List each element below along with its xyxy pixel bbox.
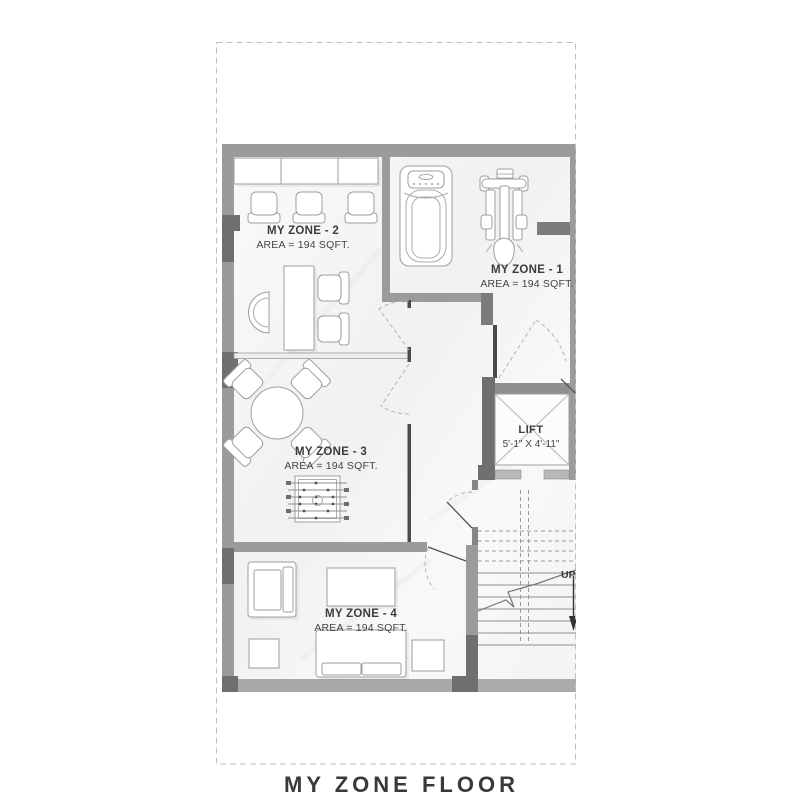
- desk: [284, 266, 314, 350]
- side-table-icon: [249, 639, 279, 668]
- zone-2-name: MY ZONE - 2: [267, 225, 339, 237]
- counter-desk: [234, 158, 378, 184]
- chair-icon: [345, 192, 377, 223]
- zone-3-name: MY ZONE - 3: [295, 446, 367, 458]
- chair-icon: [293, 192, 325, 223]
- wall-zone1-zone2-divider: [382, 157, 390, 293]
- wall-zone3-zone4: [234, 542, 412, 552]
- lift-label: LIFT: [518, 424, 543, 436]
- wall-zone2-zone3-divider: [234, 353, 408, 359]
- page-title: MY ZONE FLOOR: [0, 772, 803, 798]
- lift-door-jamb: [544, 470, 569, 479]
- wall-bottom-right: [478, 679, 578, 692]
- wall-stairs-left: [472, 480, 478, 490]
- lift-door-jamb: [495, 470, 521, 479]
- lift-shaft: LIFT 5'-1" X 4'-11": [478, 377, 578, 480]
- wall-door-stub: [412, 542, 427, 552]
- wall-bottom: [238, 679, 452, 692]
- wall-left-column: [222, 215, 234, 262]
- zone-3-area: AREA = 194 SQFT.: [284, 460, 377, 472]
- floor-plan-drawing: LIFT 5'-1" X 4'-11" UP: [0, 0, 803, 811]
- lift-wall-left: [482, 377, 495, 480]
- zone-4-area: AREA = 194 SQFT.: [314, 622, 407, 634]
- sofa-icon: [316, 630, 409, 680]
- round-table-icon: [251, 387, 303, 439]
- coffee-table-icon: [327, 568, 395, 606]
- zone-2-area: AREA = 194 SQFT.: [256, 239, 349, 251]
- wall-left-column-stub: [234, 215, 240, 231]
- wall-zone1-bottom: [382, 293, 493, 302]
- armchair-icon: [248, 562, 299, 620]
- wall-right-column: [537, 222, 570, 235]
- wall-corridor-right: [493, 325, 497, 378]
- wall-left-column: [222, 548, 234, 584]
- chair-icon: [248, 192, 280, 223]
- wall-right: [570, 144, 578, 385]
- foosball-table-icon: [286, 476, 349, 522]
- chair-icon: [318, 313, 349, 345]
- wall-top: [222, 144, 578, 157]
- lift-wall-right: [569, 383, 578, 480]
- zone-1-name: MY ZONE - 1: [491, 264, 563, 276]
- wall-stairs-left: [472, 527, 478, 545]
- lift-wall-corner: [478, 465, 495, 480]
- chair-icon: [318, 272, 349, 304]
- side-table-icon: [412, 640, 444, 671]
- wall-corner-bottom-left: [222, 676, 238, 692]
- treadmill-icon: [400, 166, 452, 266]
- wall-zone1-corner-column: [481, 293, 493, 325]
- wall-zone4-right: [466, 545, 478, 635]
- zone-4-name: MY ZONE - 4: [325, 608, 397, 620]
- wall-zone4-right-column: [466, 635, 478, 679]
- floor-plan-page: LIFT 5'-1" X 4'-11" UP: [0, 0, 803, 811]
- zone-1-area: AREA = 194 SQFT.: [480, 278, 573, 290]
- lift-wall-top: [495, 383, 578, 394]
- wall-corridor-left: [408, 424, 412, 545]
- lift-dimensions: 5'-1" X 4'-11": [503, 439, 560, 450]
